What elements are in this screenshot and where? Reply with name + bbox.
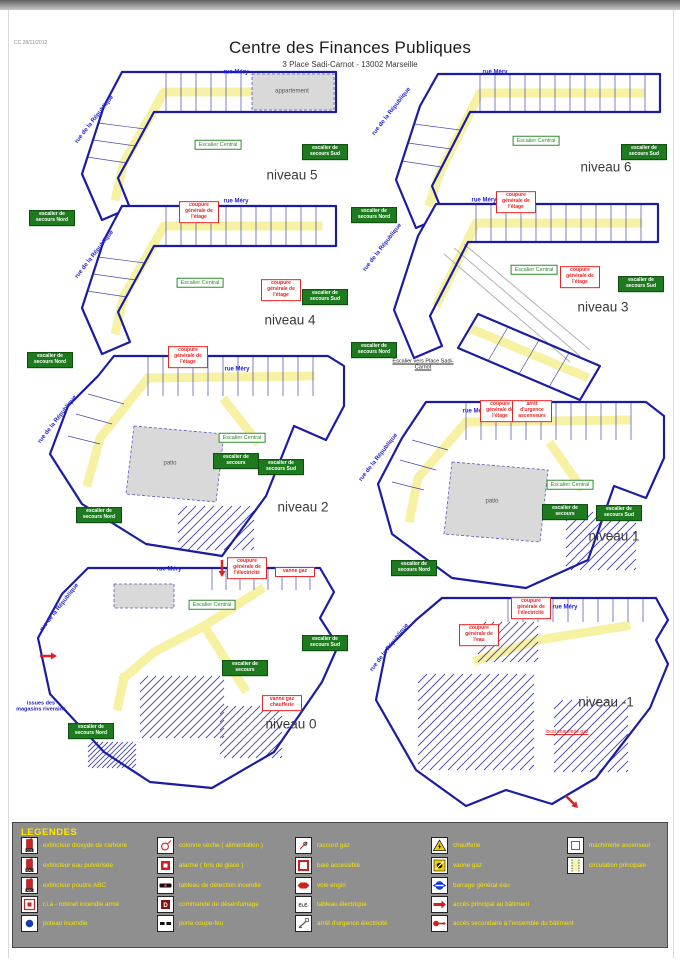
svg-text:ABC: ABC bbox=[27, 888, 33, 892]
emergency-stair-label: escalier de secours Sud bbox=[302, 635, 348, 651]
legend-item-label: r.i.a - robinet incendie armé bbox=[43, 901, 119, 908]
floor-title: niveau 0 bbox=[265, 717, 316, 732]
floor-title: niveau 2 bbox=[277, 500, 328, 515]
emergency-stair-label: escalier de secours Nord bbox=[29, 210, 75, 226]
emergency-stair-label: escalier de secours Sud bbox=[596, 505, 642, 521]
legend-item-label: raccord gaz bbox=[317, 842, 350, 849]
safety-cutoff-label: coupure générale de l'étage bbox=[496, 191, 536, 213]
floor-title: niveau -1 bbox=[578, 695, 634, 710]
emergency-stair-label: escalier de secours Sud bbox=[618, 276, 664, 292]
legend-item-label: vanne gaz bbox=[453, 862, 482, 869]
legend-item-label: alarme ( bris de glace ) bbox=[179, 862, 243, 869]
legend-item: chaufferie bbox=[431, 837, 481, 854]
street-name-top: rue Méry bbox=[471, 197, 496, 204]
central-stair-label: Escalier Central bbox=[547, 480, 594, 490]
legend-item: CO2extincteur dioxyde de carbone bbox=[21, 837, 127, 854]
legend-item-label: poteau incendie bbox=[43, 920, 87, 927]
svg-text:CO2: CO2 bbox=[27, 848, 33, 852]
legend-item-label: tableau de détection incendie bbox=[179, 882, 261, 889]
safety-cutoff-label: arrêt d'urgence ascenseurs bbox=[512, 400, 552, 422]
legend-item-label: chaufferie bbox=[453, 842, 481, 849]
smoke-control-icon: D bbox=[157, 896, 174, 913]
legend-item: EAUextincteur eau pulvérisée bbox=[21, 857, 113, 874]
main-access-icon bbox=[431, 896, 448, 913]
legend-item-label: tableau électrique bbox=[317, 901, 367, 908]
legend-item-label: voie engin bbox=[317, 882, 346, 889]
legend-item: accès principal au bâtiment bbox=[431, 896, 529, 913]
gas-connection-icon bbox=[295, 837, 312, 854]
emergency-stair-label: escalier de secours Nord bbox=[68, 723, 114, 739]
legend-item-label: barrage général eau bbox=[453, 882, 510, 889]
legend-item: barrage général eau bbox=[431, 877, 510, 894]
building-access-arrow bbox=[564, 794, 581, 811]
scan-edge-band bbox=[0, 0, 680, 10]
legend-item-label: extincteur poudre ABC bbox=[43, 882, 106, 889]
area-label: patio bbox=[163, 460, 176, 467]
floor-plan-niveau-4: rue Méryrue de la RépubliqueEscalier Cen… bbox=[30, 196, 352, 366]
legend-item-label: machinerie ascenseur bbox=[589, 842, 651, 849]
legend-item: voie engin bbox=[295, 877, 346, 894]
plan-sheet: CC 28/11/2012 Centre des Finances Publiq… bbox=[0, 0, 680, 962]
ria-icon bbox=[21, 896, 38, 913]
emergency-stair-label: escalier de secours Nord bbox=[351, 342, 397, 358]
legend-item: circulation principale bbox=[567, 857, 646, 874]
legend-item: Dcommande de désenfumage bbox=[157, 896, 259, 913]
safety-cutoff-label: coupure générale de l'étage bbox=[179, 201, 219, 223]
emergency-stair-label: escalier de secours bbox=[542, 504, 588, 520]
legend-item: tableau de détection incendie bbox=[157, 877, 261, 894]
legend-item: colonne sèche ( alimentation ) bbox=[157, 837, 263, 854]
legend-item-label: baie accessible bbox=[317, 862, 360, 869]
central-stair-label: Escalier Central bbox=[219, 433, 266, 443]
safety-cutoff-label: coupure générale de l'eau bbox=[459, 624, 499, 646]
floor-title: niveau 6 bbox=[580, 160, 631, 175]
legend-item: arrêt d'urgence électricité bbox=[295, 915, 388, 932]
gas-valve-icon bbox=[431, 857, 448, 874]
svg-text:EAU: EAU bbox=[27, 868, 33, 872]
elevator-machinery-icon bbox=[567, 837, 584, 854]
emergency-stair-label: escalier de secours Sud bbox=[621, 144, 667, 160]
alarm-icon bbox=[157, 857, 174, 874]
central-stair-label: Escalier Central bbox=[511, 265, 558, 275]
legend-item: vanne gaz bbox=[431, 857, 482, 874]
floor-plan-niveau-0: rue Méryrue de la RépubliqueEscalier Cen… bbox=[22, 556, 364, 808]
legend-item: machinerie ascenseur bbox=[567, 837, 651, 854]
floor-title: niveau 1 bbox=[588, 529, 639, 544]
central-stair-label: Escalier Central bbox=[513, 136, 560, 146]
sheet-edge-left bbox=[8, 10, 9, 958]
floor-title: niveau 5 bbox=[266, 168, 317, 183]
safety-cutoff-label: coupure générale de l'étage bbox=[168, 346, 208, 368]
legend-item-label: porte coupe-feu bbox=[179, 920, 223, 927]
emergency-stair-label: escalier de secours bbox=[213, 453, 259, 469]
dry-column-icon bbox=[157, 837, 174, 854]
extinguisher-powder-icon: ABC bbox=[21, 877, 38, 894]
floor-title: niveau 4 bbox=[264, 313, 315, 328]
floor-plan-niveau-1: rue Méryrue de la RépubliquepatioEscalie… bbox=[358, 392, 672, 592]
sheet-edge-right bbox=[673, 10, 674, 958]
emergency-stair-label: escalier de secours Nord bbox=[351, 207, 397, 223]
fire-door-icon bbox=[157, 915, 174, 932]
legend-item: alarme ( bris de glace ) bbox=[157, 857, 243, 874]
emergency-stair-label: escalier de secours bbox=[222, 660, 268, 676]
boiler-note-label: local chaufferie gaz bbox=[546, 730, 589, 736]
boiler-icon bbox=[431, 837, 448, 854]
floor-plan-niveau--1: rue Méryrue de la Républiquecoupure géné… bbox=[358, 582, 672, 812]
shops-exit-label: issues des magasins riverains bbox=[14, 701, 68, 714]
extinguisher-water-icon: EAU bbox=[21, 857, 38, 874]
central-stair-label: Escalier Central bbox=[195, 140, 242, 150]
floor-plan-drawing bbox=[28, 344, 360, 568]
electric-emergency-stop-icon bbox=[295, 915, 312, 932]
legend-item-label: arrêt d'urgence électricité bbox=[317, 920, 388, 927]
emergency-stair-label: escalier de secours Sud bbox=[302, 289, 348, 305]
fire-detection-panel-icon bbox=[157, 877, 174, 894]
legend-item: porte coupe-feu bbox=[157, 915, 223, 932]
central-stair-label: Escalier Central bbox=[189, 600, 236, 610]
street-name-top: rue Méry bbox=[482, 69, 507, 76]
floor-plan-niveau-2: rue Méryrue de la RépubliquepatioEscalie… bbox=[28, 344, 360, 568]
legend-item-label: accès principal au bâtiment bbox=[453, 901, 529, 908]
area-label: appartement bbox=[275, 88, 309, 95]
legend-item-label: commande de désenfumage bbox=[179, 901, 259, 908]
legend-item-label: extincteur dioxyde de carbone bbox=[43, 842, 127, 849]
secondary-access-icon bbox=[431, 915, 448, 932]
legend-item-label: colonne sèche ( alimentation ) bbox=[179, 842, 263, 849]
street-name-top: rue Méry bbox=[223, 69, 248, 76]
emergency-stair-label: escalier de secours Nord bbox=[391, 560, 437, 576]
legend-item: ELE.tableau électrique bbox=[295, 896, 367, 913]
accessible-bay-icon bbox=[295, 857, 312, 874]
area-label: patio bbox=[485, 498, 498, 505]
street-name-top: rue Méry bbox=[224, 366, 249, 373]
emergency-stair-label: escalier de secours Sud bbox=[302, 144, 348, 160]
safety-cutoff-label: vanne gaz chaufferie bbox=[262, 695, 302, 711]
street-name-top: rue Méry bbox=[156, 566, 181, 573]
street-name-top: rue Méry bbox=[552, 604, 577, 611]
central-stair-label: Escalier Central bbox=[177, 278, 224, 288]
main-circulation-icon bbox=[567, 857, 584, 874]
electrical-panel-icon: ELE. bbox=[295, 896, 312, 913]
safety-cutoff-label: coupure générale de l'étage bbox=[560, 266, 600, 288]
safety-cutoff-label: coupure générale de l'électricité bbox=[511, 597, 551, 619]
emergency-stair-label: escalier de secours Sud bbox=[258, 459, 304, 475]
legend-item: raccord gaz bbox=[295, 837, 350, 854]
safety-cutoff-label: coupure générale de l'électricité bbox=[227, 557, 267, 579]
legend-item: poteau incendie bbox=[21, 915, 87, 932]
water-shutoff-icon bbox=[431, 877, 448, 894]
svg-text:D: D bbox=[163, 903, 168, 909]
legend-item: ABCextincteur poudre ABC bbox=[21, 877, 106, 894]
legend: LEGENDES CO2extincteur dioxyde de carbon… bbox=[12, 822, 668, 948]
stair-note-label: Escalier vers Place Sadi-Carnot bbox=[392, 359, 454, 372]
emergency-stair-label: escalier de secours Nord bbox=[76, 507, 122, 523]
legend-item: baie accessible bbox=[295, 857, 360, 874]
doc-ref: CC 28/11/2012 bbox=[14, 40, 47, 46]
hydrant-icon bbox=[21, 915, 38, 932]
fire-lane-icon bbox=[295, 877, 312, 894]
safety-cutoff-label: coupure générale de l'étage bbox=[261, 279, 301, 301]
legend-item: accès secondaire à l'ensemble du bâtimen… bbox=[431, 915, 574, 932]
extinguisher-co2-icon: CO2 bbox=[21, 837, 38, 854]
svg-text:ELE.: ELE. bbox=[298, 903, 308, 908]
legend-item-label: accès secondaire à l'ensemble du bâtimen… bbox=[453, 920, 574, 927]
emergency-stair-label: escalier de secours Nord bbox=[27, 352, 73, 368]
page-title: Centre des Finances Publiques bbox=[170, 38, 530, 58]
legend-item-label: extincteur eau pulvérisée bbox=[43, 862, 113, 869]
legend-item: r.i.a - robinet incendie armé bbox=[21, 896, 119, 913]
floor-plan-niveau-3: rue Méryrue de la RépubliqueEscalier Cen… bbox=[358, 196, 672, 404]
floor-title: niveau 3 bbox=[577, 300, 628, 315]
street-name-top: rue Méry bbox=[223, 198, 248, 205]
legend-item-label: circulation principale bbox=[589, 862, 646, 869]
safety-cutoff-label: vanne gaz bbox=[275, 567, 315, 577]
